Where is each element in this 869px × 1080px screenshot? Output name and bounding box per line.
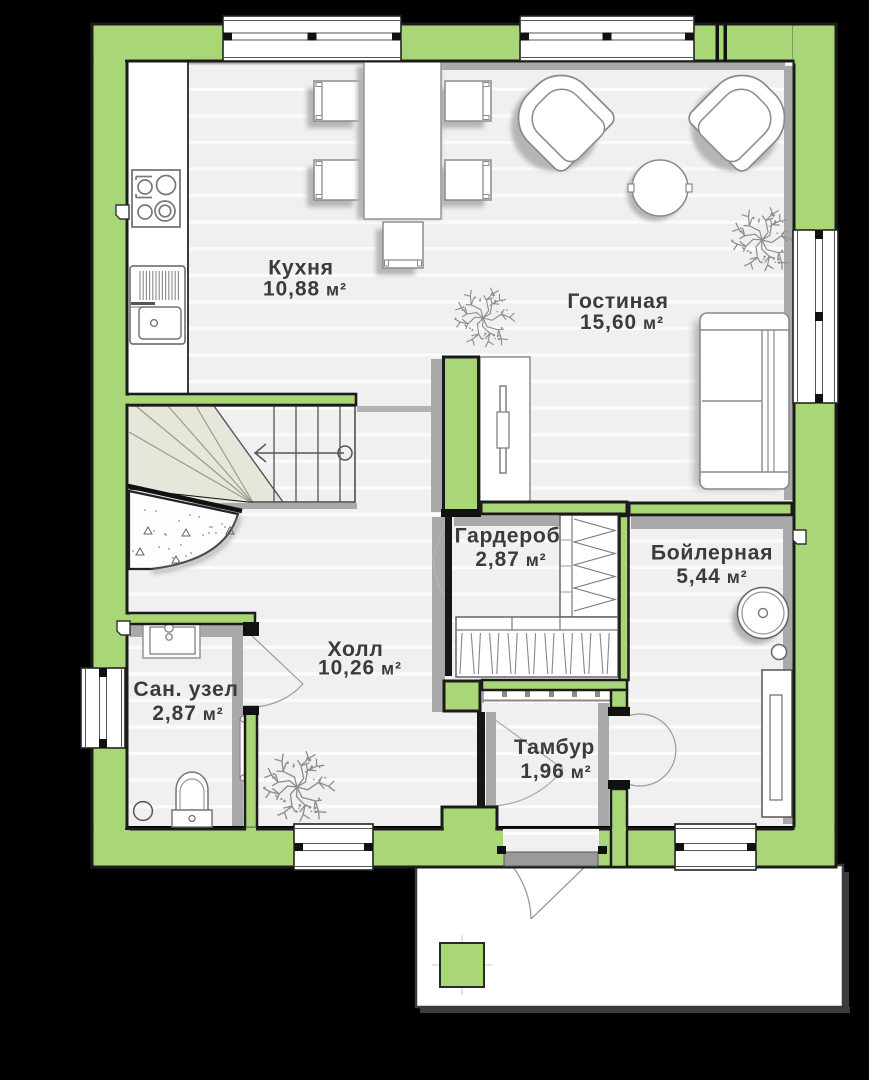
- svg-text:Гостиная: Гостиная: [567, 290, 668, 313]
- svg-text:10,88 м²: 10,88 м²: [263, 278, 347, 301]
- svg-text:5,44 м²: 5,44 м²: [676, 565, 747, 588]
- svg-text:2,87 м²: 2,87 м²: [475, 548, 546, 571]
- svg-text:2,87 м²: 2,87 м²: [152, 702, 223, 725]
- svg-text:Сан. узел: Сан. узел: [133, 678, 238, 701]
- svg-text:10,26 м²: 10,26 м²: [318, 657, 402, 680]
- svg-text:1,96 м²: 1,96 м²: [520, 760, 591, 783]
- svg-text:Тамбур: Тамбур: [514, 736, 595, 759]
- svg-text:Гардероб: Гардероб: [455, 525, 561, 548]
- svg-text:Бойлерная: Бойлерная: [651, 542, 773, 565]
- svg-text:15,60 м²: 15,60 м²: [580, 311, 664, 334]
- svg-text:Кухня: Кухня: [268, 257, 333, 280]
